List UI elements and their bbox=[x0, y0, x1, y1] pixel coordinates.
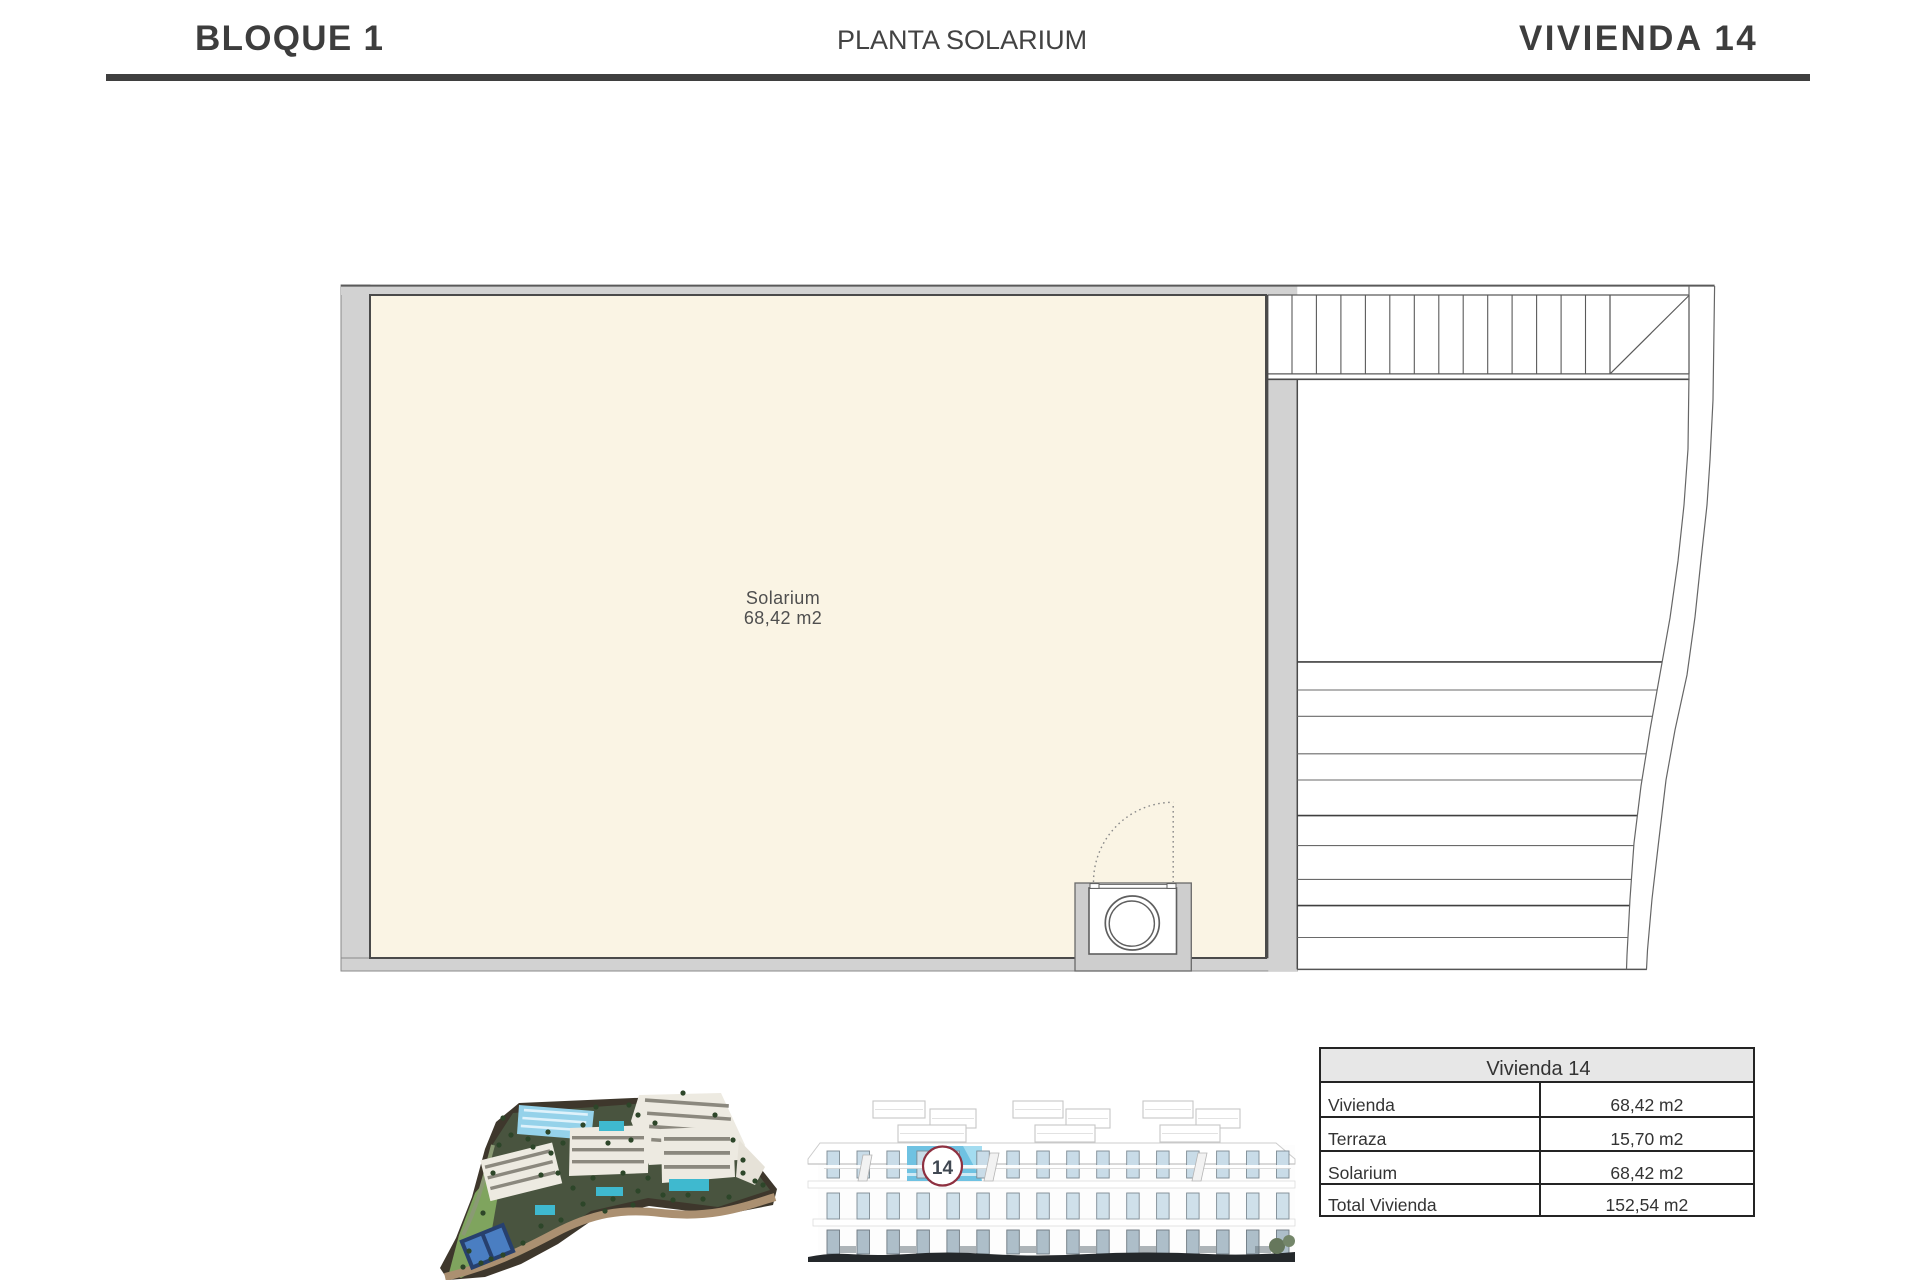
svg-text:Solarium: Solarium bbox=[746, 588, 820, 608]
svg-text:14: 14 bbox=[932, 1158, 954, 1179]
svg-text:68,42 m2: 68,42 m2 bbox=[744, 608, 822, 628]
